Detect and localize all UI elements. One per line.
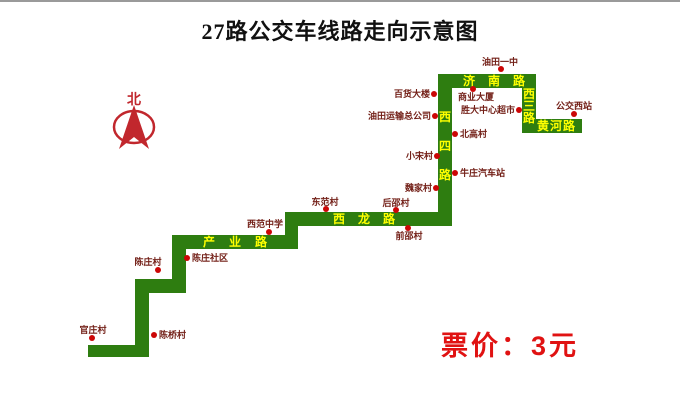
stop-label: 公交西站 (556, 101, 592, 111)
stop-label: 后邵村 (382, 198, 409, 208)
compass-north-icon: 北 (106, 86, 162, 152)
stop-label: 前邵村 (395, 231, 422, 241)
stop-dot (516, 107, 522, 113)
stop-dot (452, 131, 458, 137)
map-title: 27路公交车线路走向示意图 (0, 14, 680, 46)
road-name-label: 西龙路 (333, 213, 408, 226)
stop-label: 陈庄村 (134, 257, 161, 267)
stop-dot (431, 91, 437, 97)
compass-north-label: 北 (127, 91, 141, 107)
stop-dot (571, 111, 577, 117)
road-name-label: 黄河路 (537, 120, 576, 133)
stop-label: 北高村 (460, 129, 487, 139)
route-map-canvas: 27路公交车线路走向示意图 北 产业路西龙路济南路黄河路西四路西三路官庄村陈桥村… (0, 0, 680, 407)
stop-label: 商业大厦 (458, 92, 494, 102)
stop-label: 油田运输总公司 (368, 111, 431, 121)
road-name-label: 西三路 (523, 88, 535, 124)
stop-dot (432, 113, 438, 119)
road-name-char: 四 (439, 140, 451, 152)
road-name-char: 路 (439, 169, 451, 181)
fare-text: 票价：3元 (441, 324, 579, 363)
stop-label: 油田一中 (482, 57, 518, 67)
road-name-label: 西四路 (439, 111, 451, 181)
stop-label: 官庄村 (79, 325, 106, 335)
stop-dot (433, 185, 439, 191)
stop-label: 魏家村 (405, 183, 432, 193)
stop-dot (266, 229, 272, 235)
stop-dot (151, 332, 157, 338)
stop-label: 小宋村 (406, 151, 433, 161)
stop-dot (155, 267, 161, 273)
road-name-label: 产业路 (203, 236, 281, 249)
stop-dot (89, 335, 95, 341)
stop-dot (434, 153, 440, 159)
stop-label: 西范中学 (247, 219, 283, 229)
road-name-char: 西 (439, 111, 451, 123)
stop-dot (452, 170, 458, 176)
road-segment-vertical-1 (135, 289, 149, 357)
stop-label: 胜大中心超市 (461, 105, 515, 115)
road-name-char: 路 (523, 112, 535, 124)
stop-dot (184, 255, 190, 261)
stop-label: 东范村 (311, 197, 338, 207)
stop-label: 陈桥村 (159, 330, 186, 340)
stop-label: 牛庄汽车站 (460, 168, 505, 178)
stop-label: 百货大楼 (394, 89, 430, 99)
stop-label: 陈庄社区 (192, 253, 228, 263)
